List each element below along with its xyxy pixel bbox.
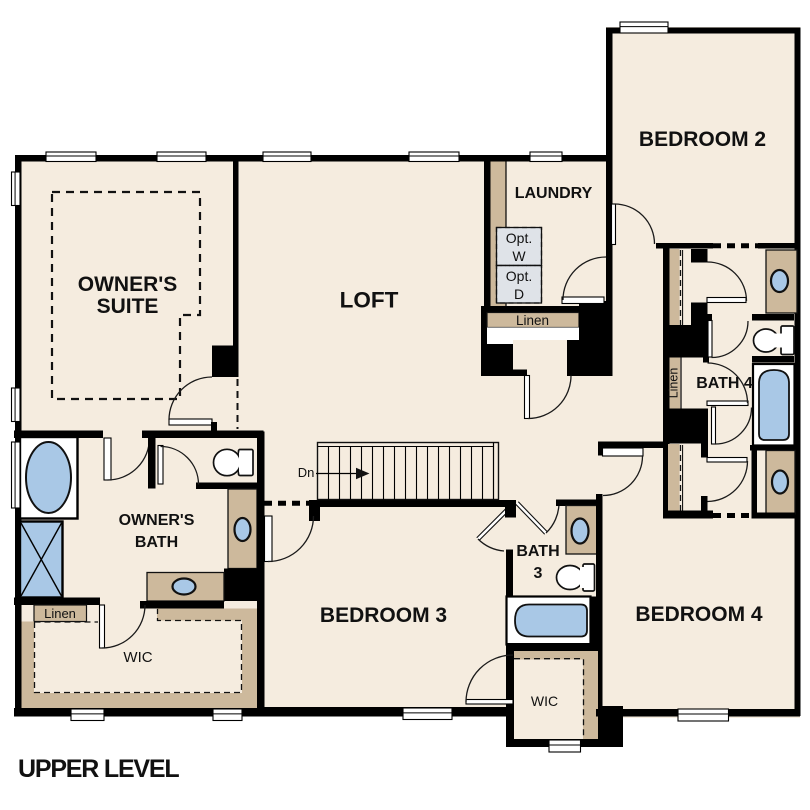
svg-text:BATH: BATH	[135, 534, 178, 551]
svg-text:BATH: BATH	[516, 543, 559, 560]
svg-text:D: D	[514, 286, 524, 302]
svg-text:UPPER LEVEL: UPPER LEVEL	[18, 755, 179, 783]
svg-text:3: 3	[534, 565, 543, 582]
svg-text:W: W	[512, 248, 526, 264]
svg-text:LOFT: LOFT	[340, 288, 399, 313]
svg-text:BEDROOM 2: BEDROOM 2	[639, 128, 766, 151]
svg-text:BEDROOM 3: BEDROOM 3	[320, 604, 447, 627]
svg-text:Dn: Dn	[298, 465, 315, 480]
svg-text:SUITE: SUITE	[97, 295, 159, 318]
svg-text:WIC: WIC	[531, 693, 558, 709]
svg-text:OWNER'S: OWNER'S	[119, 512, 195, 529]
svg-text:Linen: Linen	[44, 606, 76, 621]
svg-text:BATH 4: BATH 4	[696, 375, 753, 392]
svg-text:LAUNDRY: LAUNDRY	[515, 185, 593, 202]
svg-text:Opt.: Opt.	[506, 230, 532, 246]
svg-text:Linen: Linen	[667, 368, 681, 399]
svg-text:WIC: WIC	[123, 649, 152, 666]
svg-text:Opt.: Opt.	[506, 268, 532, 284]
svg-text:BEDROOM 4: BEDROOM 4	[635, 603, 763, 626]
svg-text:Linen: Linen	[516, 313, 549, 328]
svg-text:OWNER'S: OWNER'S	[78, 273, 178, 296]
